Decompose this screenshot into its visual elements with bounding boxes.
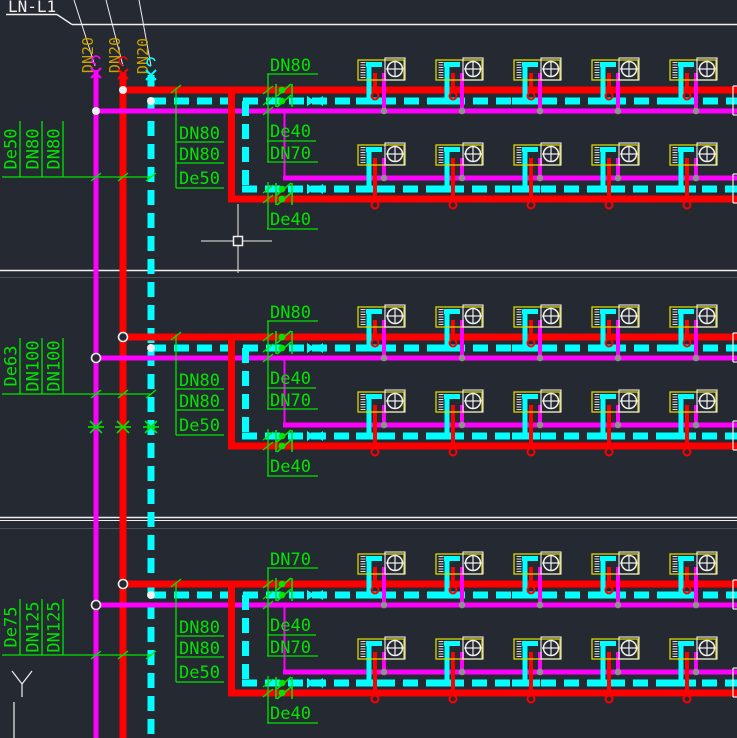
fan-crosshair-icon (386, 555, 404, 571)
pipe-size-label: DN70 (270, 638, 311, 658)
pipe-size-label: DN125 (24, 601, 44, 652)
supply-hook-icon (372, 202, 379, 209)
supply-hook-icon (606, 696, 613, 703)
return-connector-dot (693, 669, 700, 676)
fan-crosshair-icon (620, 393, 638, 409)
pipe-size-label: DN80 (270, 56, 311, 76)
riser-size-labels[interactable]: DN20DN20DN20 (79, 37, 152, 74)
fan-crosshair-icon (620, 61, 638, 77)
filter-hatch-icon (439, 642, 444, 657)
return-connector-dot (537, 108, 544, 115)
filter-hatch-icon (595, 148, 600, 163)
supply-hook-icon (606, 202, 613, 209)
fan-crosshair-icon (464, 61, 482, 77)
fan-crosshair-icon (464, 393, 482, 409)
fan-crosshair-icon (542, 146, 560, 162)
return-connector-dot (615, 602, 622, 609)
filter-hatch-icon (517, 148, 522, 163)
pipe-size-label: De40 (270, 122, 311, 142)
fan-coil-unit[interactable] (668, 552, 717, 608)
fan-coil-unit[interactable] (590, 58, 639, 114)
fan-coil-unit[interactable] (356, 552, 405, 608)
fan-crosshair-icon (542, 555, 560, 571)
fan-coil-unit[interactable] (434, 305, 483, 361)
pipe-annotations[interactable]: De50DN80DN80DN80DN80De50DN80De40DN70De40 (2, 56, 319, 230)
pipe-size-label: DN80 (270, 303, 311, 323)
pipe-size-label: De40 (270, 369, 311, 389)
return-connector-dot (381, 669, 388, 676)
pipe-size-label: De40 (270, 704, 311, 724)
fan-crosshair-icon (464, 146, 482, 162)
fan-crosshair-icon (620, 555, 638, 571)
grid-axis-mark (12, 671, 32, 738)
return-connector-dot (615, 669, 622, 676)
fan-coil-unit[interactable] (668, 58, 717, 114)
filter-hatch-icon (439, 557, 444, 572)
return-connector-dot (537, 602, 544, 609)
supply-hook-icon (528, 202, 535, 209)
fan-crosshair-icon (698, 61, 716, 77)
pipe-size-label: DN80 (179, 639, 220, 659)
fan-crosshair-icon (542, 393, 560, 409)
fan-crosshair-icon (464, 308, 482, 324)
pipe-size-label: DN80 (24, 129, 44, 170)
riser-size-label: DN20 (106, 37, 124, 73)
filter-hatch-icon (517, 310, 522, 325)
pipe-size-label: De40 (270, 210, 311, 230)
fan-crosshair-icon (698, 308, 716, 324)
fan-crosshair-icon (464, 640, 482, 656)
fan-crosshair-icon (698, 393, 716, 409)
pipe-size-label: DN70 (270, 144, 311, 164)
fan-coil-unit[interactable] (590, 552, 639, 608)
cad-drawing-canvas[interactable]: LN-L1DN20DN20DN20De50DN80DN80DN80DN80De5… (0, 0, 737, 738)
fan-crosshair-icon (386, 640, 404, 656)
fan-coil-unit[interactable] (512, 58, 561, 114)
fan-crosshair-icon (698, 146, 716, 162)
return-connector-dot (693, 355, 700, 362)
filter-hatch-icon (673, 63, 678, 78)
return-connector-dot (693, 602, 700, 609)
return-connector-dot (459, 175, 466, 182)
fan-crosshair-icon (542, 308, 560, 324)
return-connector-dot (537, 669, 544, 676)
return-connector-dot (381, 602, 388, 609)
return-connector-dot (459, 355, 466, 362)
filter-hatch-icon (595, 557, 600, 572)
pipe-size-label: De50 (2, 129, 22, 170)
filter-hatch-icon (439, 310, 444, 325)
supply-hook-icon (684, 202, 691, 209)
pipe-size-label: DN70 (270, 550, 311, 570)
pipe-size-label: De63 (2, 346, 22, 387)
pipe-size-label: De50 (179, 416, 220, 436)
fan-coil-unit[interactable] (512, 552, 561, 608)
return-connector-dot (693, 175, 700, 182)
fan-coil-unit[interactable] (434, 58, 483, 114)
fan-coil-unit[interactable] (356, 58, 405, 114)
pipe-size-label: DN100 (24, 340, 44, 391)
fan-crosshair-icon (386, 393, 404, 409)
return-connector-dot (381, 175, 388, 182)
riser-size-label: DN20 (79, 37, 97, 73)
filter-hatch-icon (595, 642, 600, 657)
pipe-size-label: DN80 (179, 618, 220, 638)
pipe-size-label: DN80 (179, 392, 220, 412)
filter-hatch-icon (673, 148, 678, 163)
filter-hatch-icon (439, 148, 444, 163)
filter-hatch-icon (517, 642, 522, 657)
fan-crosshair-icon (386, 146, 404, 162)
pipe-size-label: De40 (270, 616, 311, 636)
supply-hook-icon (684, 696, 691, 703)
filter-hatch-icon (595, 395, 600, 410)
fan-crosshair-icon (464, 555, 482, 571)
filter-hatch-icon (361, 148, 366, 163)
fan-coil-unit[interactable] (512, 305, 561, 361)
pipe-size-label: De50 (179, 169, 220, 189)
return-connector-dot (381, 355, 388, 362)
supply-hook-icon (450, 696, 457, 703)
fan-crosshair-icon (698, 640, 716, 656)
pickbox (234, 237, 243, 246)
fan-coil-unit[interactable] (434, 552, 483, 608)
supply-hook-icon (528, 696, 535, 703)
fan-crosshair-icon (542, 61, 560, 77)
fan-coil-unit[interactable] (356, 305, 405, 361)
fan-crosshair-icon (620, 640, 638, 656)
pipe-size-label: De75 (2, 607, 22, 648)
filter-hatch-icon (361, 63, 366, 78)
filter-hatch-icon (439, 63, 444, 78)
supply-hook-icon (684, 449, 691, 456)
floor-band-1: De50DN80DN80DN80DN80De50DN80De40DN70De40 (2, 56, 737, 230)
filter-hatch-icon (361, 395, 366, 410)
floor-band-3: De75DN125DN125DN80DN80De50DN70De40DN70De… (2, 550, 737, 724)
filter-hatch-icon (361, 557, 366, 572)
supply-hook-icon (450, 202, 457, 209)
floor-band-2: De63DN100DN100DN80DN80De50DN80De40DN70De… (2, 303, 737, 477)
return-connector-dot (459, 422, 466, 429)
supply-hook-icon (372, 449, 379, 456)
return-connector-dot (381, 422, 388, 429)
return-connector-dot (615, 355, 622, 362)
return-connector-dot (381, 108, 388, 115)
supply-hook-icon (450, 449, 457, 456)
filter-hatch-icon (595, 310, 600, 325)
fan-coil-unit[interactable] (668, 305, 717, 361)
filter-hatch-icon (595, 63, 600, 78)
pipe-size-label: De40 (270, 457, 311, 477)
pipe-annotations[interactable]: De63DN100DN100DN80DN80De50DN80De40DN70De… (2, 303, 319, 477)
cad-model-space[interactable]: LN-L1DN20DN20DN20De50DN80DN80DN80DN80De5… (0, 0, 737, 738)
fan-coil-unit[interactable] (590, 305, 639, 361)
filter-hatch-icon (673, 395, 678, 410)
pipe-size-label: DN100 (45, 340, 65, 391)
fan-crosshair-icon (698, 555, 716, 571)
return-connector-dot (537, 422, 544, 429)
return-connector-dot (537, 175, 544, 182)
fan-crosshair-icon (386, 308, 404, 324)
crosshair-cursor (201, 204, 272, 273)
filter-hatch-icon (439, 395, 444, 410)
pipe-size-label: De50 (179, 663, 220, 683)
fan-crosshair-icon (620, 308, 638, 324)
pipe-size-label: DN70 (270, 391, 311, 411)
pipe-size-label: DN80 (45, 129, 65, 170)
return-connector-dot (693, 108, 700, 115)
filter-hatch-icon (673, 642, 678, 657)
fan-crosshair-icon (620, 146, 638, 162)
pipe-size-label: DN80 (179, 145, 220, 165)
drawing-title: LN-L1 (8, 0, 56, 16)
filter-hatch-icon (517, 557, 522, 572)
riser-size-label: DN20 (134, 38, 152, 74)
pipe-size-label: DN125 (45, 601, 65, 652)
return-connector-dot (459, 108, 466, 115)
fan-crosshair-icon (386, 61, 404, 77)
filter-hatch-icon (517, 395, 522, 410)
return-connector-dot (615, 108, 622, 115)
return-connector-dot (693, 422, 700, 429)
filter-hatch-icon (361, 642, 366, 657)
supply-hook-icon (528, 449, 535, 456)
filter-hatch-icon (361, 310, 366, 325)
pipe-size-label: DN80 (179, 371, 220, 391)
supply-hook-icon (606, 449, 613, 456)
return-connector-dot (459, 602, 466, 609)
title-block: LN-L1 (6, 0, 737, 25)
filter-hatch-icon (673, 557, 678, 572)
pipe-size-label: DN80 (179, 124, 220, 144)
return-connector-dot (459, 669, 466, 676)
return-connector-dot (615, 175, 622, 182)
filter-hatch-icon (517, 63, 522, 78)
pipe-annotations[interactable]: De75DN125DN125DN80DN80De50DN70De40DN70De… (2, 550, 319, 724)
supply-hook-icon (372, 696, 379, 703)
filter-hatch-icon (673, 310, 678, 325)
return-connector-dot (537, 355, 544, 362)
fan-crosshair-icon (542, 640, 560, 656)
return-connector-dot (615, 422, 622, 429)
